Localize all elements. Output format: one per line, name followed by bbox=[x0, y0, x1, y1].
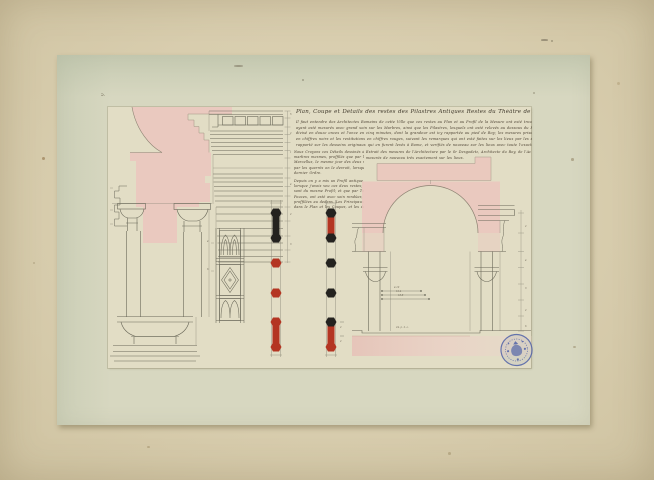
dim-label: 4 bbox=[525, 259, 527, 262]
dim-label: 24. p. 2. o. bbox=[396, 326, 409, 329]
text-line: dans le Plan et les Coupes, et les détai… bbox=[294, 205, 364, 210]
dim-label: 4 bbox=[290, 183, 292, 186]
text-line: Il faut entendre des Architectes Romains… bbox=[296, 120, 532, 126]
text-line: rapporté sur les desseins originaux qui … bbox=[296, 143, 532, 149]
dim-label: 6 bbox=[525, 325, 527, 328]
dim-label: 4.10 bbox=[394, 286, 399, 289]
foxing-spot bbox=[573, 346, 576, 348]
text-line: sont du mesme Profil; et que par Toises,… bbox=[294, 189, 364, 194]
plate-title: Plan, Coupe et Détails des restes des Pi… bbox=[296, 109, 533, 116]
sheet-discoloration-left bbox=[57, 55, 111, 425]
pencil-mark bbox=[234, 65, 243, 67]
dim-label: 18.8 bbox=[398, 294, 403, 297]
foxing-spot bbox=[448, 452, 451, 455]
foxing-spot bbox=[33, 262, 35, 264]
dim-label: 3 bbox=[290, 243, 292, 246]
dim-label: 2 bbox=[340, 326, 342, 329]
foxing-spot bbox=[617, 82, 620, 85]
dim-label: 2 bbox=[290, 132, 292, 135]
dim-label: 1 bbox=[290, 151, 292, 154]
text-line: Marcellus, le mesme jour des deux mesure… bbox=[294, 160, 364, 165]
foxing-spot bbox=[42, 157, 45, 160]
dim-label: 6 bbox=[207, 268, 209, 271]
dim-label: 2 bbox=[340, 340, 342, 343]
dim-label: 12.4 bbox=[396, 290, 401, 293]
right-note-column: Extrait des mesures de l'Architecture pa… bbox=[366, 150, 531, 162]
text-line: Extrait des mesures de l'Architecture pa… bbox=[366, 150, 531, 156]
dim-label: 2 bbox=[290, 213, 292, 216]
foxing-spot bbox=[571, 158, 574, 161]
left-note-column: Nous Croyons ces Détails dessinés d'aprè… bbox=[294, 150, 364, 210]
text-line: mesurés de nouveau très exactement sur l… bbox=[366, 156, 531, 162]
dim-label: 3 bbox=[525, 287, 527, 290]
text-line: dernier Ordre. bbox=[294, 171, 364, 176]
text-line: en chiffres noirs et les restitutions en… bbox=[296, 137, 532, 143]
dim-label: 4 bbox=[207, 240, 209, 243]
foxing-spot bbox=[302, 79, 304, 81]
dim-label: 2 bbox=[525, 309, 527, 312]
plate-corner-number: 5. bbox=[101, 93, 106, 98]
foxing-spot bbox=[147, 446, 150, 448]
foxing-spot bbox=[533, 92, 535, 94]
pencil-mark bbox=[541, 39, 548, 41]
scanned-plate-photo: 5. Plan, Coupe et Détails des restes des… bbox=[0, 0, 654, 480]
dim-label: 5 bbox=[290, 113, 292, 116]
foxing-spot bbox=[551, 40, 553, 42]
sheet-discoloration-top bbox=[57, 55, 590, 97]
intro-paragraph: Il faut entendre des Architectes Romains… bbox=[296, 120, 532, 149]
dim-label: 2 bbox=[525, 225, 527, 228]
